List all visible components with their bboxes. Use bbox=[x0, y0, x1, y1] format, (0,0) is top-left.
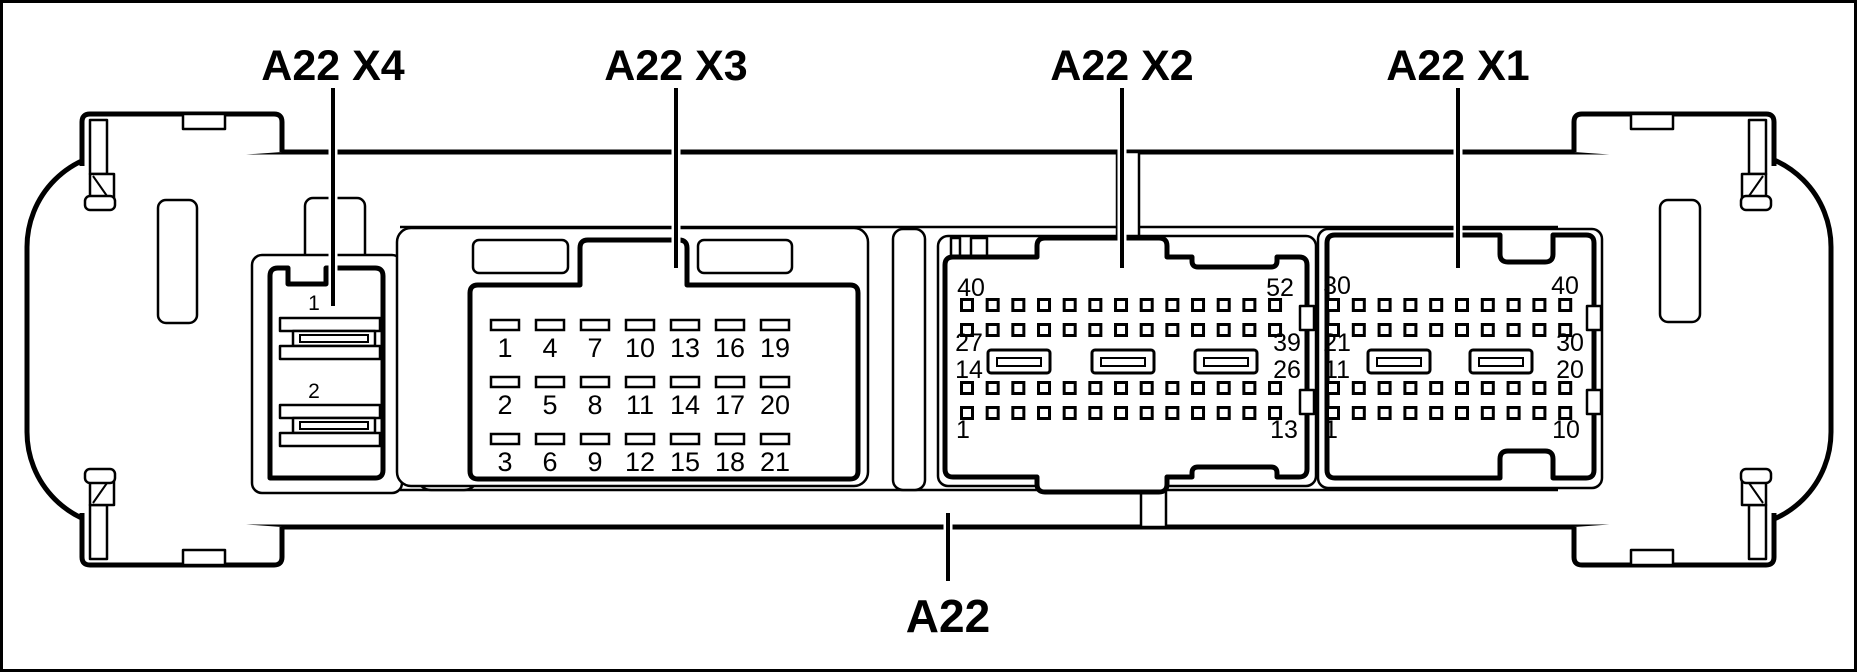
pin-square bbox=[1090, 325, 1101, 336]
x3-terminal-bar bbox=[761, 434, 789, 444]
pin-square bbox=[1167, 300, 1178, 311]
pin-square bbox=[1141, 325, 1152, 336]
x3-pin-11: 11 bbox=[626, 390, 654, 420]
pin-square bbox=[1218, 408, 1229, 419]
x2-num-top-right: 52 bbox=[1266, 274, 1294, 302]
pin-square bbox=[1141, 408, 1152, 419]
pin-square bbox=[1039, 325, 1050, 336]
x3-pin-19: 19 bbox=[760, 333, 790, 363]
pin-square bbox=[1405, 408, 1416, 419]
x2-blade-slots bbox=[988, 350, 1257, 373]
x4-blade-terminal-2 bbox=[280, 405, 380, 446]
x3-pin-21: 21 bbox=[760, 447, 790, 477]
x3-terminal-bar bbox=[626, 377, 654, 387]
pin-square bbox=[1244, 408, 1255, 419]
pin-square bbox=[1405, 383, 1416, 394]
x2-num-mid-left-top: 27 bbox=[955, 329, 983, 357]
x3-terminal-bar bbox=[671, 320, 699, 330]
pin-square bbox=[1064, 325, 1075, 336]
pin-square bbox=[1193, 408, 1204, 419]
pin-square bbox=[1244, 325, 1255, 336]
x3-pin-20: 20 bbox=[760, 390, 790, 420]
x3-plate-window-right bbox=[698, 240, 792, 273]
x3-pin-18: 18 bbox=[715, 447, 745, 477]
x1-num-top-right: 40 bbox=[1551, 272, 1579, 300]
pin-square bbox=[1405, 325, 1416, 336]
pin-square bbox=[1090, 300, 1101, 311]
pin-square bbox=[987, 300, 998, 311]
x3-pin-9: 9 bbox=[587, 447, 602, 477]
pin-square bbox=[987, 383, 998, 394]
x3-terminal-bar bbox=[671, 434, 699, 444]
pin-square bbox=[1218, 325, 1229, 336]
x3-pin-14: 14 bbox=[670, 390, 700, 420]
x2-num-bottom-right: 13 bbox=[1270, 416, 1298, 444]
x3-pin-15: 15 bbox=[670, 447, 700, 477]
x3-terminal-bar bbox=[671, 377, 699, 387]
pin-square bbox=[1457, 300, 1468, 311]
pin-square bbox=[1141, 300, 1152, 311]
x3-terminal-bar bbox=[581, 434, 609, 444]
x3-pin-3: 3 bbox=[497, 447, 512, 477]
x3-pin-5: 5 bbox=[542, 390, 557, 420]
x3-terminal-bar bbox=[716, 377, 744, 387]
pin-square bbox=[1431, 383, 1442, 394]
x3-terminal-bar bbox=[716, 320, 744, 330]
pin-square bbox=[1141, 383, 1152, 394]
x3-pin-4: 4 bbox=[542, 333, 557, 363]
label-a22-x2: A22 X2 bbox=[1050, 42, 1193, 90]
x3-pin-17: 17 bbox=[715, 390, 745, 420]
pin-square bbox=[1090, 408, 1101, 419]
pin-square bbox=[987, 408, 998, 419]
pin-square bbox=[1064, 408, 1075, 419]
x3-pin-7: 7 bbox=[587, 333, 602, 363]
x1-num-bottom-left: 1 bbox=[1324, 416, 1338, 444]
x3-terminal-bar bbox=[581, 320, 609, 330]
x1-edge-notch bbox=[1587, 390, 1601, 414]
diagram-canvas: 1 2 1 2 3 4 5 6 7 8 9 bbox=[0, 0, 1857, 672]
x3-terminal-bar bbox=[536, 377, 564, 387]
x3-pin-1: 1 bbox=[497, 333, 512, 363]
x3-terminal-bar bbox=[716, 434, 744, 444]
x1-num-top-left: 30 bbox=[1323, 272, 1351, 300]
pin-square bbox=[1431, 300, 1442, 311]
pin-square bbox=[1482, 383, 1493, 394]
left-vent-slot bbox=[158, 200, 197, 323]
pin-square bbox=[1090, 383, 1101, 394]
x3-terminal-bar bbox=[491, 434, 519, 444]
x3-plate-window-left bbox=[473, 240, 568, 273]
pin-square bbox=[1353, 408, 1364, 419]
x2-num-mid-left-bottom: 14 bbox=[955, 356, 983, 384]
right-vent-slot bbox=[1660, 200, 1700, 322]
pin-square bbox=[1379, 408, 1390, 419]
pin-square bbox=[1193, 300, 1204, 311]
x2-num-mid-right-bottom: 26 bbox=[1273, 356, 1301, 384]
pin-square bbox=[1039, 383, 1050, 394]
x3-pin-6: 6 bbox=[542, 447, 557, 477]
pin-square bbox=[1534, 325, 1545, 336]
pin-square bbox=[1167, 383, 1178, 394]
pin-square bbox=[1013, 300, 1024, 311]
x2-num-mid-right-top: 39 bbox=[1273, 329, 1301, 357]
label-a22-x1: A22 X1 bbox=[1386, 42, 1529, 90]
pin-square bbox=[1353, 383, 1364, 394]
label-a22-x4: A22 X4 bbox=[261, 42, 405, 90]
x3-pin-10: 10 bbox=[625, 333, 655, 363]
pin-square bbox=[1482, 300, 1493, 311]
pin-square bbox=[1270, 383, 1281, 394]
pin-square bbox=[1379, 325, 1390, 336]
x2-edge-notch bbox=[1300, 306, 1314, 330]
x3-terminal-bar bbox=[581, 377, 609, 387]
pin-square bbox=[1353, 325, 1364, 336]
pin-square bbox=[1116, 408, 1127, 419]
pin-square bbox=[1039, 408, 1050, 419]
x1-edge-notch bbox=[1587, 306, 1601, 330]
pin-square bbox=[1218, 300, 1229, 311]
pin-square bbox=[1013, 383, 1024, 394]
x1-num-mid-right-top: 30 bbox=[1556, 329, 1584, 357]
pin-square bbox=[1560, 383, 1571, 394]
connector-x2: 40 52 27 14 39 26 1 13 bbox=[938, 236, 1316, 492]
x3-terminal-bar bbox=[761, 377, 789, 387]
pin-square bbox=[1353, 300, 1364, 311]
pin-square bbox=[1116, 383, 1127, 394]
connector-pinout-diagram: 1 2 1 2 3 4 5 6 7 8 9 bbox=[0, 0, 1857, 672]
label-a22-module: A22 bbox=[906, 590, 990, 642]
pin-square bbox=[1482, 408, 1493, 419]
pin-square bbox=[1457, 408, 1468, 419]
pin-square bbox=[1457, 383, 1468, 394]
x3-pin-13: 13 bbox=[670, 333, 700, 363]
x2-edge-notch bbox=[1300, 390, 1314, 414]
x1-num-mid-left-bottom: 11 bbox=[1324, 356, 1350, 384]
x3-terminal-bar bbox=[491, 377, 519, 387]
x3-terminal-bar bbox=[536, 434, 564, 444]
pin-square bbox=[1431, 408, 1442, 419]
x3-pin-2: 2 bbox=[497, 390, 512, 420]
pin-square bbox=[1244, 300, 1255, 311]
pin-square bbox=[1328, 383, 1339, 394]
x3-terminal-bar bbox=[626, 434, 654, 444]
x3-terminal-bar bbox=[761, 320, 789, 330]
x4-pin-label-1: 1 bbox=[308, 292, 320, 315]
pin-square bbox=[1534, 408, 1545, 419]
x2-num-top-left: 40 bbox=[957, 274, 985, 302]
x4-blade-terminal-1 bbox=[280, 318, 380, 359]
x4-pin-label-2: 2 bbox=[308, 380, 320, 403]
pin-square bbox=[987, 325, 998, 336]
x3-terminal-bar bbox=[626, 320, 654, 330]
pin-square bbox=[1064, 300, 1075, 311]
pin-square bbox=[1244, 383, 1255, 394]
x1-num-mid-left-top: 21 bbox=[1323, 329, 1351, 357]
pin-square bbox=[1405, 300, 1416, 311]
x3-pin-8: 8 bbox=[587, 390, 602, 420]
pin-square bbox=[1560, 300, 1571, 311]
pin-square bbox=[1508, 325, 1519, 336]
pin-square bbox=[1534, 300, 1545, 311]
pin-square bbox=[1534, 383, 1545, 394]
pin-square bbox=[1379, 383, 1390, 394]
pin-square bbox=[1064, 383, 1075, 394]
x1-num-bottom-right: 10 bbox=[1552, 416, 1580, 444]
pin-square bbox=[1013, 325, 1024, 336]
pin-square bbox=[1379, 300, 1390, 311]
x3-terminal-bar bbox=[536, 320, 564, 330]
pin-square bbox=[1508, 383, 1519, 394]
pin-square bbox=[1039, 300, 1050, 311]
divider-strip-x3-x2 bbox=[893, 229, 925, 490]
pin-square bbox=[1328, 300, 1339, 311]
pin-square bbox=[1457, 325, 1468, 336]
x3-pin-12: 12 bbox=[625, 447, 655, 477]
x2-num-bottom-left: 1 bbox=[956, 416, 970, 444]
connector-x3: 1 2 3 4 5 6 7 8 9 10 11 12 13 14 15 16 1… bbox=[397, 228, 868, 486]
pin-square bbox=[1431, 325, 1442, 336]
support-post-bottom bbox=[1141, 490, 1166, 527]
x3-terminal-bar bbox=[491, 320, 519, 330]
pin-square bbox=[962, 383, 973, 394]
pin-square bbox=[1218, 383, 1229, 394]
pin-square bbox=[1193, 383, 1204, 394]
pin-square bbox=[1167, 325, 1178, 336]
pin-square bbox=[1116, 325, 1127, 336]
pin-square bbox=[1508, 408, 1519, 419]
x3-pin-16: 16 bbox=[715, 333, 745, 363]
pin-square bbox=[1508, 300, 1519, 311]
pin-square bbox=[1116, 300, 1127, 311]
pin-square bbox=[1013, 408, 1024, 419]
label-a22-x3: A22 X3 bbox=[604, 42, 747, 90]
pin-square bbox=[1167, 408, 1178, 419]
pin-square bbox=[1193, 325, 1204, 336]
pin-square bbox=[1482, 325, 1493, 336]
x1-num-mid-right-bottom: 20 bbox=[1556, 356, 1584, 384]
